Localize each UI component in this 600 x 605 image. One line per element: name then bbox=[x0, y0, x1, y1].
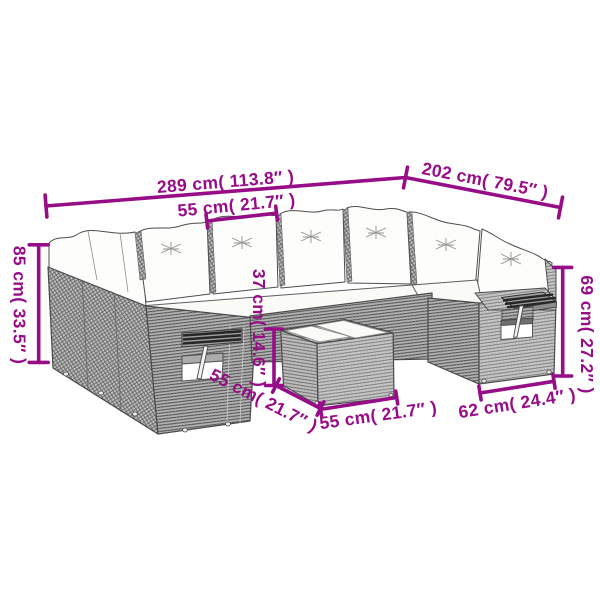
svg-text:85 cm( 33.5″ ): 85 cm( 33.5″ ) bbox=[10, 246, 30, 364]
svg-text:37 cm( 14.6″ ): 37 cm( 14.6″ ) bbox=[249, 269, 269, 387]
svg-text:62 cm( 24.4″ ): 62 cm( 24.4″ ) bbox=[457, 384, 577, 422]
svg-text:202 cm( 79.5″ ): 202 cm( 79.5″ ) bbox=[420, 158, 550, 202]
svg-text:69 cm( 27.2″ ): 69 cm( 27.2″ ) bbox=[577, 275, 597, 393]
